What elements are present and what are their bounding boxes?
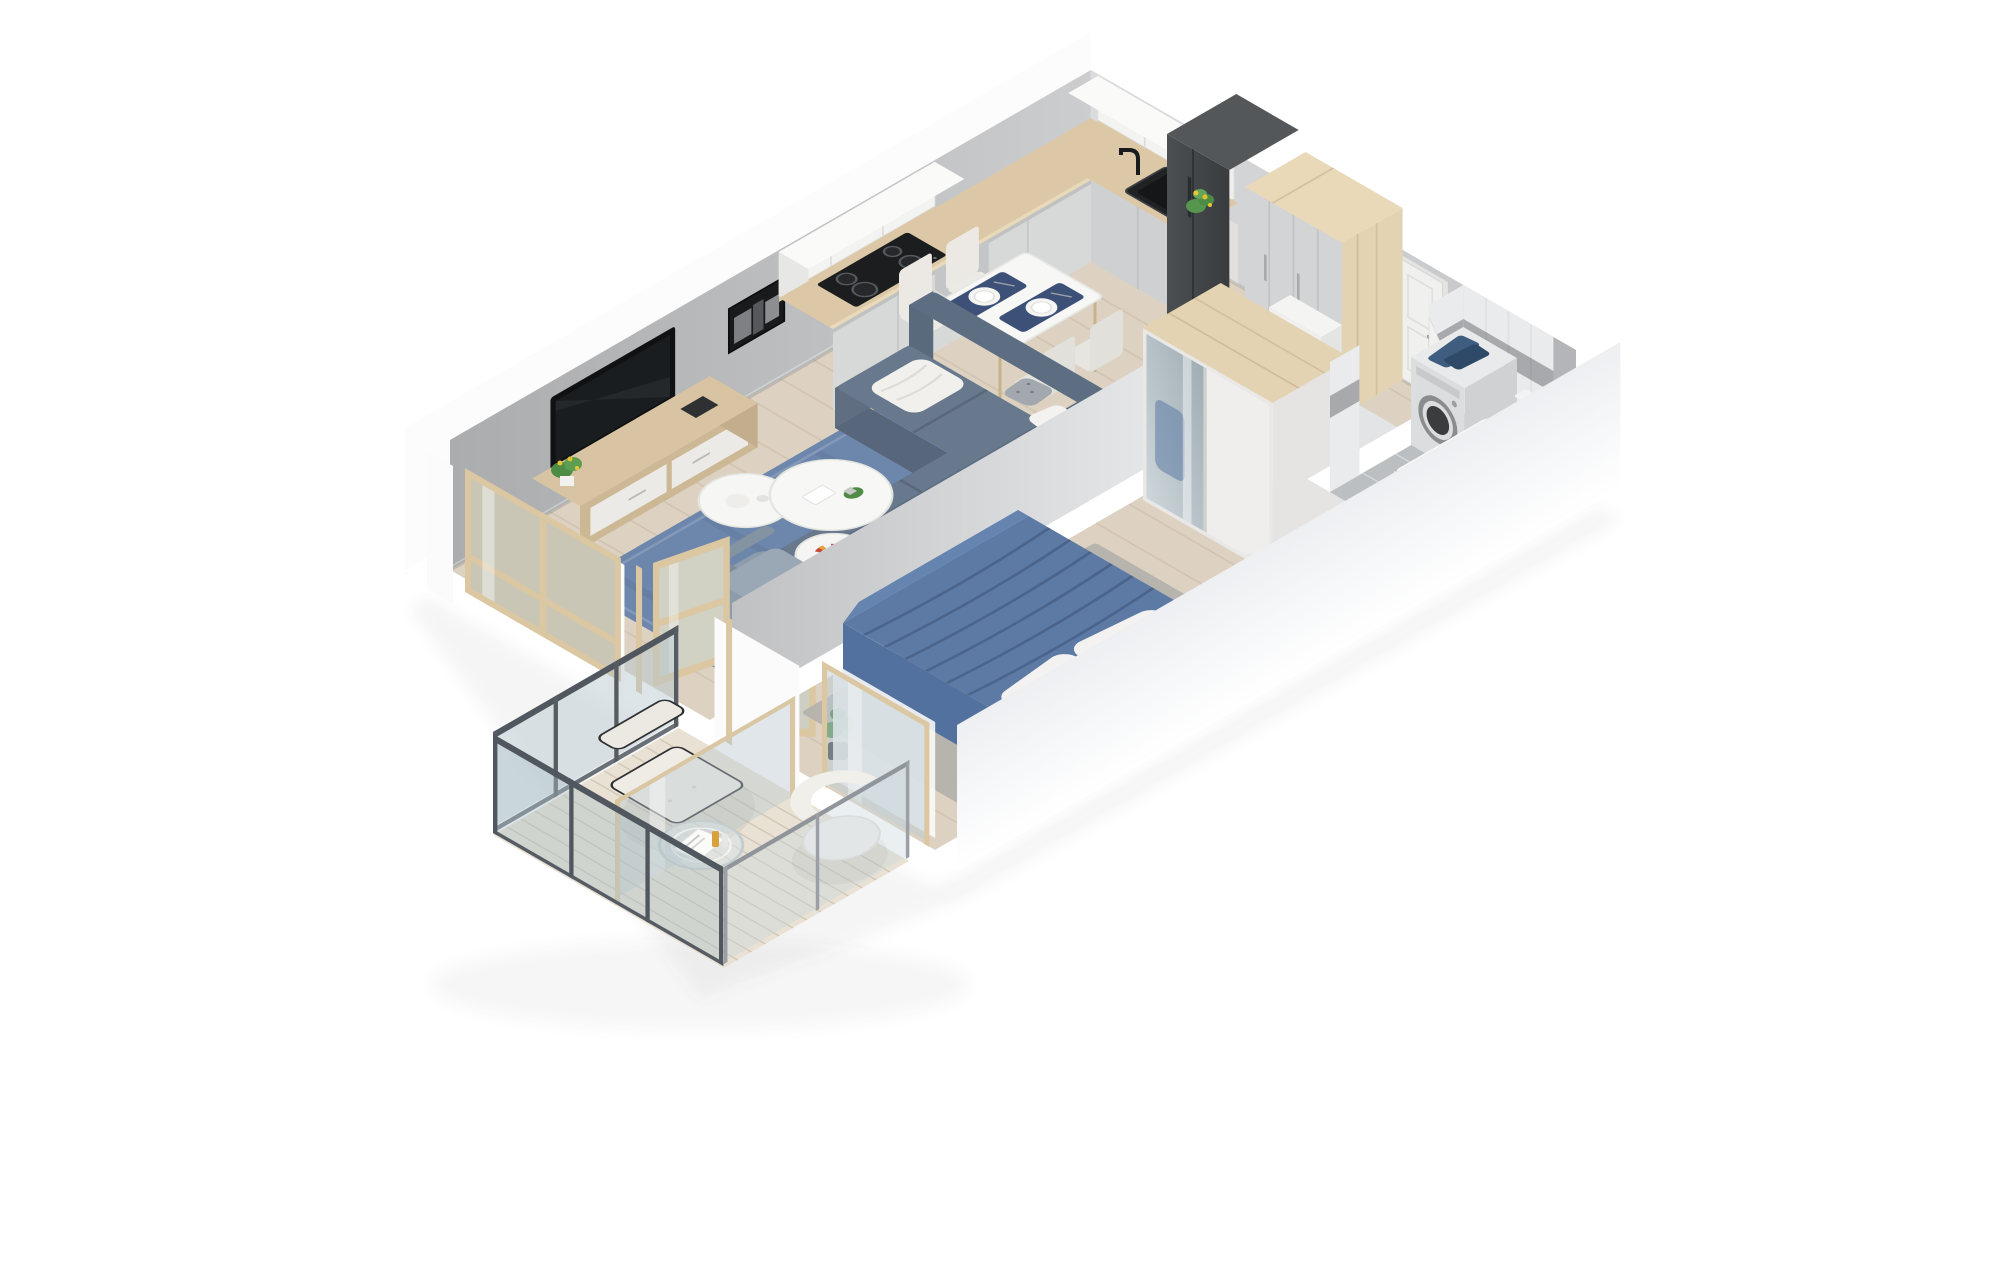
floorplan-3d-render	[0, 0, 2000, 1280]
floorplan-canvas	[0, 0, 2000, 1280]
